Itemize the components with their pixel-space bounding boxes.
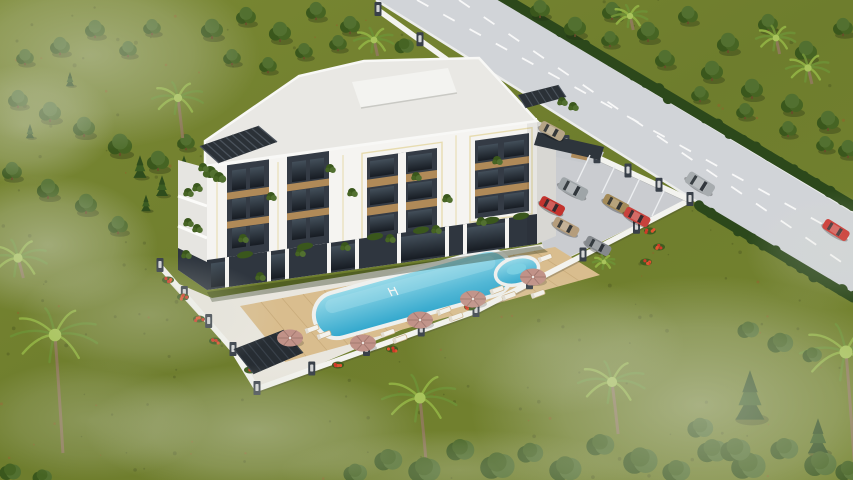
flower-planter <box>332 362 344 369</box>
flower-planter <box>640 259 652 266</box>
aerial-render <box>0 0 853 480</box>
fog-patch <box>405 275 685 415</box>
fence-pillar <box>625 164 632 178</box>
fence-pillar <box>687 192 694 206</box>
flower-planter <box>386 346 398 353</box>
fence-pillar <box>375 2 382 16</box>
fence-pillar <box>417 32 424 46</box>
render-stage <box>0 0 853 480</box>
flower-planter <box>653 244 665 251</box>
fence-pillar <box>656 178 663 192</box>
fog-patch <box>20 255 280 375</box>
flower-planter <box>644 228 656 235</box>
fence-pillar <box>580 248 587 262</box>
